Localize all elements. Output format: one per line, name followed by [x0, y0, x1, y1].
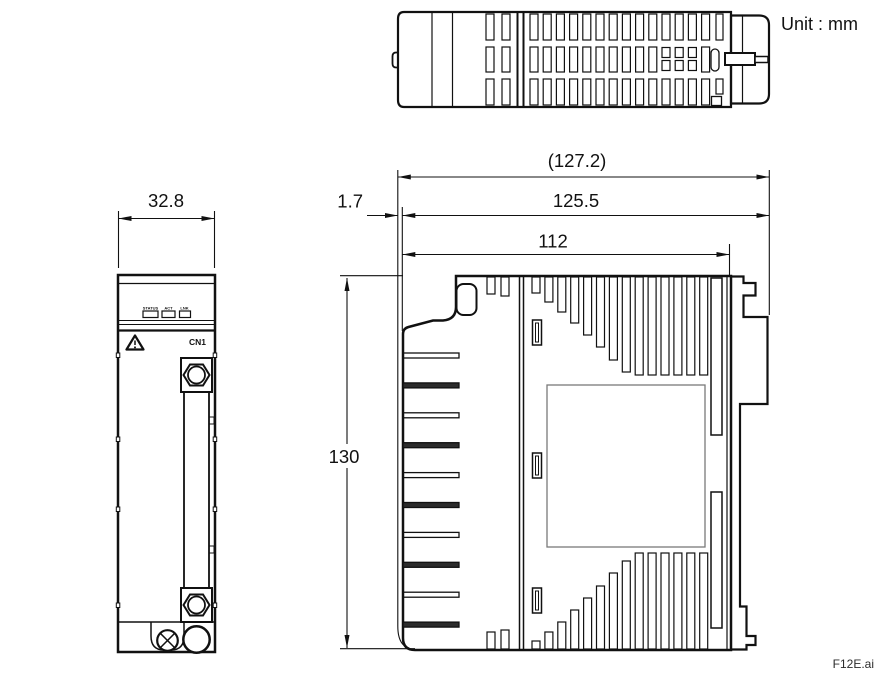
vent-slot: [649, 47, 657, 72]
top-view-divider: [518, 12, 524, 107]
screw-block: [181, 358, 212, 392]
dim-height: 130: [329, 446, 360, 467]
back-vent-slot: [711, 278, 722, 435]
vent-slot: [533, 453, 542, 478]
vent-slot: [609, 14, 617, 40]
side-vent-fins: [403, 353, 459, 627]
vent-slot: [116, 353, 120, 358]
vent-slot: [558, 622, 566, 649]
vent-slot: [403, 592, 459, 597]
dim-offset: 1.7: [337, 191, 363, 212]
top-view-vent-grid: [530, 14, 723, 106]
vent-slot: [116, 507, 120, 512]
vent-slot: [674, 277, 682, 375]
vent-slot: [662, 61, 670, 71]
vent-slot: [609, 47, 617, 72]
cross-screw-icon: [157, 630, 178, 651]
vent-slot: [403, 503, 459, 508]
vent-slot: [649, 79, 657, 105]
vent-slot: [486, 47, 494, 72]
vent-slot: [487, 277, 495, 294]
vent-slot: [635, 277, 643, 375]
dim-overall-width: (127.2): [548, 150, 607, 171]
vent-slot: [570, 14, 578, 40]
vent-slot: [403, 562, 459, 567]
vent-slot: [636, 47, 644, 72]
vent-slot: [213, 353, 217, 358]
vent-slot: [622, 277, 630, 372]
dim-depth: 112: [538, 231, 568, 252]
vent-slot: [635, 553, 643, 649]
vent-slot: [675, 48, 683, 58]
vent-slot: [597, 586, 605, 649]
vent-slot: [662, 14, 670, 40]
vent-slot: [636, 79, 644, 105]
back-vent-slot: [711, 492, 722, 628]
vent-slot: [116, 437, 120, 442]
vent-slot: [702, 79, 710, 105]
vent-slot: [622, 47, 630, 72]
dim-front-width: 32.8: [148, 190, 184, 211]
vent-slot: [662, 79, 670, 105]
file-label: F12E.ai: [833, 657, 874, 671]
side-view-mount-flange: [731, 277, 768, 650]
vent-slot: [213, 437, 217, 442]
dimension-drawing: 32.8 STATUS ACT LNK CN1: [0, 0, 882, 678]
vent-slot: [403, 473, 459, 478]
vent-slot: [711, 49, 719, 71]
vent-slot: [675, 14, 683, 40]
vent-slot: [501, 630, 509, 649]
vent-slot: [571, 277, 579, 323]
vent-slot: [687, 277, 695, 375]
vent-slot: [596, 79, 604, 105]
vent-slot: [536, 591, 539, 610]
vent-slot: [530, 79, 538, 105]
label-area: [547, 385, 705, 547]
vent-slot: [636, 14, 644, 40]
unit-label: Unit : mm: [781, 14, 858, 34]
vent-slot: [532, 277, 540, 293]
vent-slot: [609, 79, 617, 105]
vent-slot: [622, 14, 630, 40]
vent-slot: [502, 79, 510, 105]
vent-slot: [213, 603, 217, 608]
vent-slot: [532, 641, 540, 649]
vent-slot: [556, 14, 564, 40]
vent-slot: [584, 277, 592, 335]
vent-slot: [583, 14, 591, 40]
vent-slot: [688, 61, 696, 71]
vent-slot: [570, 79, 578, 105]
connector-body: [184, 392, 209, 588]
vent-slot: [583, 47, 591, 72]
vent-slot: [556, 79, 564, 105]
vent-slot: [687, 553, 695, 649]
vent-slot: [648, 277, 656, 375]
vent-slot: [213, 507, 217, 512]
warning-icon: [127, 336, 144, 350]
din-latch-icon: [725, 53, 768, 65]
vent-slot: [702, 47, 710, 72]
side-view: (127.2) 125.5 1.7 112 130: [329, 150, 770, 650]
vent-slot: [622, 561, 630, 649]
led-indicator: [162, 311, 175, 318]
vent-slot: [403, 443, 459, 448]
vent-slot: [700, 277, 708, 375]
vent-slot: [584, 598, 592, 649]
vent-slot: [116, 603, 120, 608]
vent-slot: [716, 79, 723, 94]
vent-slot: [716, 14, 723, 40]
top-view: [393, 12, 770, 107]
vent-slot: [609, 277, 617, 360]
vent-slot: [662, 48, 670, 58]
drawing-canvas: 32.8 STATUS ACT LNK CN1: [0, 0, 882, 678]
vent-slot: [609, 573, 617, 649]
vent-slot: [536, 323, 539, 342]
vent-slot: [543, 79, 551, 105]
vent-slot: [530, 14, 538, 40]
vent-slot: [502, 14, 510, 40]
led-label-lnk: LNK: [180, 306, 188, 311]
vent-slot: [596, 47, 604, 72]
vent-slot: [487, 632, 495, 649]
vent-slot: [688, 14, 696, 40]
vent-slot: [597, 277, 605, 347]
vent-slot: [675, 61, 683, 71]
led-label-act: ACT: [164, 306, 173, 311]
vent-slot: [530, 47, 538, 72]
side-clips: [533, 320, 542, 613]
vent-slot: [571, 610, 579, 649]
vent-slot: [403, 532, 459, 537]
front-view: 32.8 STATUS ACT LNK CN1: [116, 190, 216, 653]
vent-slot: [596, 14, 604, 40]
vent-slot: [570, 47, 578, 72]
vent-slot: [502, 47, 510, 72]
vent-slot: [486, 79, 494, 105]
top-view-vent-slots-left: [486, 14, 510, 105]
vent-slot: [543, 47, 551, 72]
vent-slot: [688, 79, 696, 105]
vent-slot: [536, 456, 539, 475]
mounting-hole: [183, 626, 209, 652]
screw-block: [181, 588, 212, 622]
vent-slot: [661, 553, 669, 649]
led-indicator: [143, 311, 158, 318]
vent-slot: [533, 588, 542, 613]
vent-slot: [700, 553, 708, 649]
vent-slot: [545, 277, 553, 302]
vent-slot: [648, 553, 656, 649]
vent-slot: [545, 632, 553, 649]
vent-slot: [649, 14, 657, 40]
led-indicator: [180, 311, 191, 318]
connector-label: CN1: [189, 337, 206, 347]
vent-slot: [556, 47, 564, 72]
vent-slot: [622, 79, 630, 105]
vent-slot: [712, 97, 722, 106]
vent-slot: [661, 277, 669, 375]
top-hook: [457, 284, 477, 315]
vent-slot: [533, 320, 542, 345]
vent-slot: [403, 353, 459, 358]
vent-slot: [558, 277, 566, 312]
vent-slot: [543, 14, 551, 40]
dim-body-width: 125.5: [553, 190, 599, 211]
vent-slot: [501, 277, 509, 296]
vent-slot: [702, 14, 710, 40]
hex-screw-icon: [184, 595, 210, 616]
vent-slot: [675, 79, 683, 105]
connector-cn1: [181, 358, 214, 622]
vent-slot: [688, 48, 696, 58]
vent-slot: [403, 383, 459, 388]
vent-slot: [403, 622, 459, 627]
vent-slot: [486, 14, 494, 40]
hex-screw-icon: [184, 365, 210, 386]
vent-slot: [583, 79, 591, 105]
vent-slot: [674, 553, 682, 649]
vent-slot: [403, 413, 459, 418]
led-label-status: STATUS: [143, 306, 159, 311]
